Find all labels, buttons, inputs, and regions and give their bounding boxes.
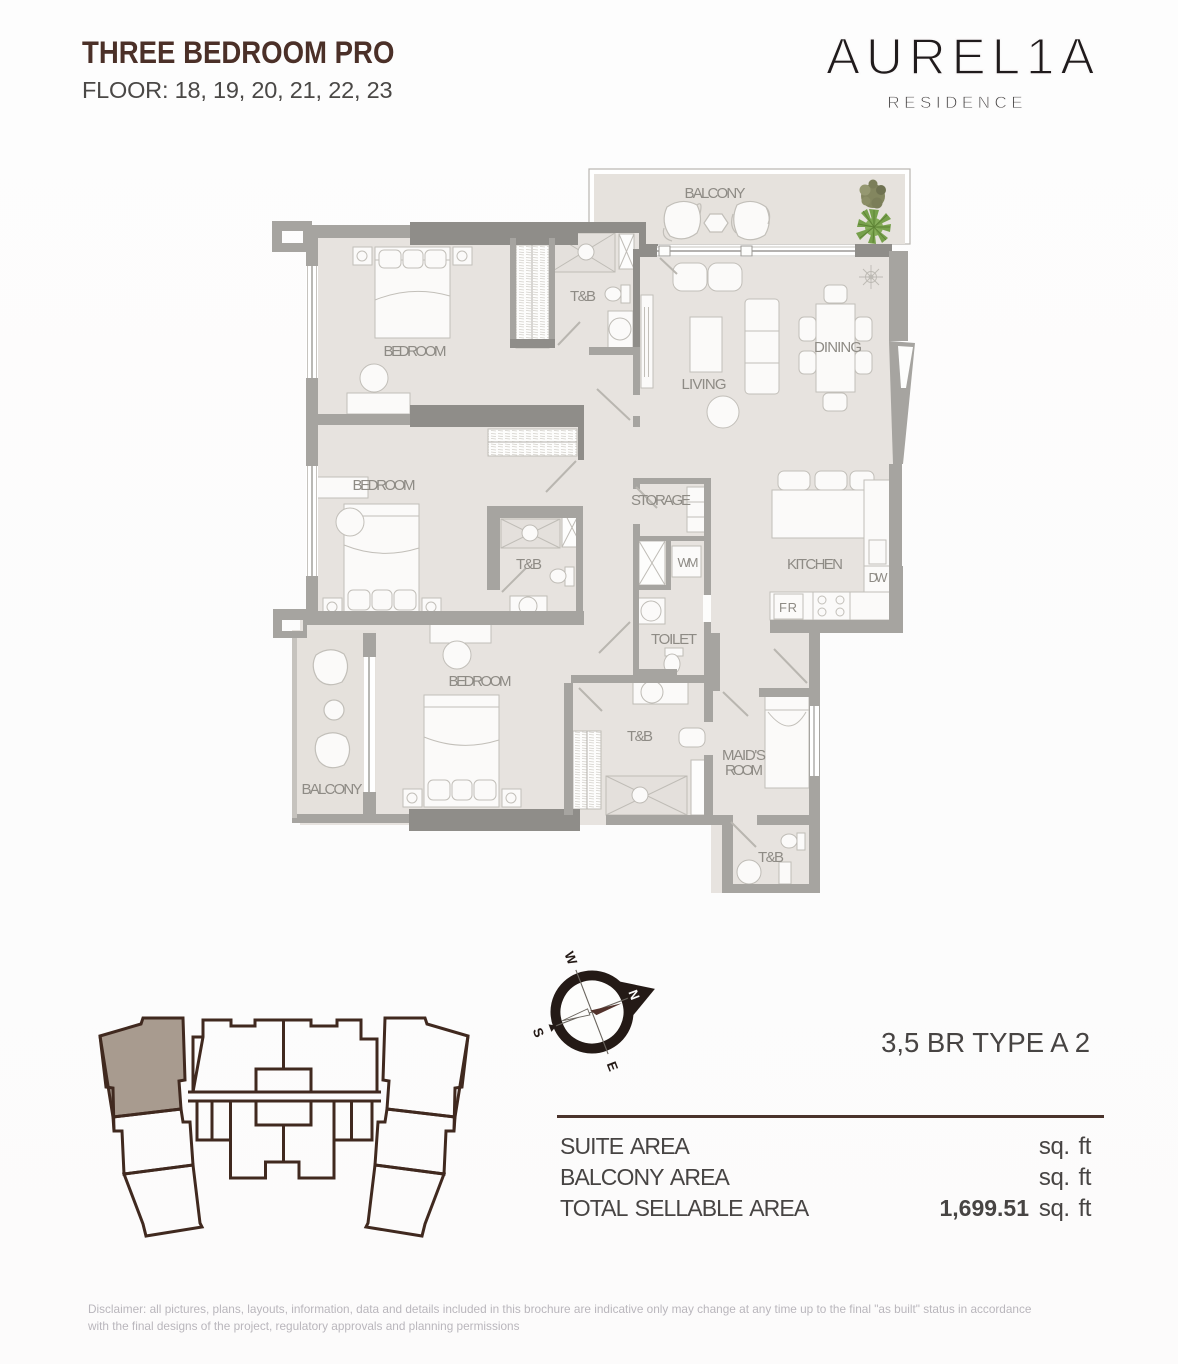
svg-text:S: S bbox=[530, 1026, 547, 1040]
svg-text:TOILET: TOILET bbox=[651, 631, 697, 648]
svg-text:DINING: DINING bbox=[814, 339, 862, 356]
svg-text:BALCONY: BALCONY bbox=[685, 185, 746, 202]
svg-text:T&B: T&B bbox=[516, 556, 542, 573]
svg-text:STORAGE: STORAGE bbox=[631, 492, 691, 509]
svg-text:ROOM: ROOM bbox=[725, 762, 763, 779]
svg-text:T&B: T&B bbox=[570, 288, 596, 305]
svg-text:DW: DW bbox=[869, 570, 889, 585]
svg-text:T&B: T&B bbox=[758, 849, 784, 866]
svg-text:BEDROOM: BEDROOM bbox=[449, 673, 512, 690]
svg-text:E: E bbox=[604, 1059, 621, 1073]
svg-text:BALCONY: BALCONY bbox=[302, 781, 363, 798]
svg-text:BEDROOM: BEDROOM bbox=[384, 343, 447, 360]
svg-text:FR: FR bbox=[779, 600, 797, 615]
svg-text:KITCHEN: KITCHEN bbox=[787, 556, 843, 573]
svg-text:BEDROOM: BEDROOM bbox=[353, 477, 416, 494]
svg-text:T&B: T&B bbox=[627, 728, 653, 745]
svg-text:W: W bbox=[561, 949, 580, 967]
svg-text:LIVING: LIVING bbox=[682, 376, 727, 393]
svg-text:WM: WM bbox=[678, 555, 699, 570]
